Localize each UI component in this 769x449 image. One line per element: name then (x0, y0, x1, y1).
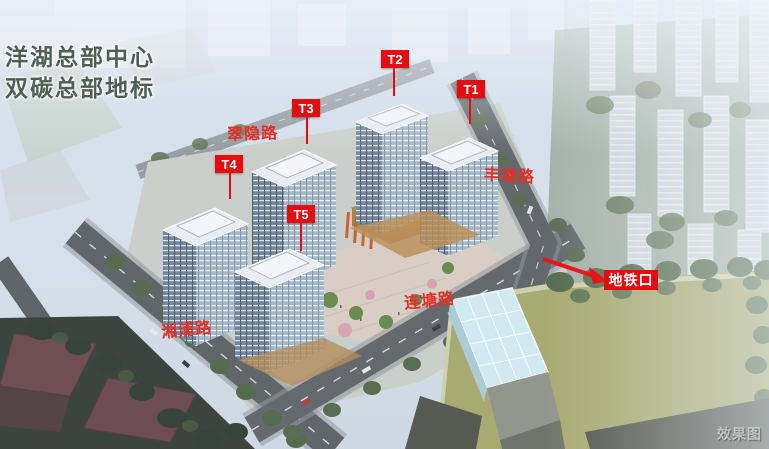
metro-entrance-label: 地铁口 (604, 270, 658, 290)
tower-leader-t2 (393, 68, 395, 96)
project-title-line2: 双碳总部地标 (5, 73, 155, 104)
tower-leader-t4 (229, 173, 231, 199)
watermark: 效果图 (717, 424, 762, 444)
tower-label-t1: T1 (457, 80, 485, 98)
road-label-fengtang: 丰塘路 (483, 161, 535, 188)
annotations-layer: 洋湖总部中心 双碳总部地标 T2 T1 T3 T4 T5 翠隐路 丰塘路 连塘路… (0, 0, 769, 449)
tower-label-t3: T3 (292, 99, 320, 117)
tower-leader-t1 (469, 98, 471, 124)
road-label-cuiyin: 翠隐路 (227, 119, 279, 145)
road-label-liantang: 连塘路 (403, 284, 456, 313)
project-title-line1: 洋湖总部中心 (5, 42, 155, 73)
aerial-render: 洋湖总部中心 双碳总部地标 T2 T1 T3 T4 T5 翠隐路 丰塘路 连塘路… (0, 0, 769, 449)
tower-label-t4: T4 (215, 155, 243, 173)
road-label-xiangpu: 湘浦路 (160, 313, 213, 342)
tower-leader-t5 (300, 223, 302, 251)
tower-label-t2: T2 (381, 50, 409, 68)
project-title: 洋湖总部中心 双碳总部地标 (5, 42, 155, 104)
tower-leader-t3 (306, 117, 308, 144)
tower-label-t5: T5 (287, 205, 315, 223)
